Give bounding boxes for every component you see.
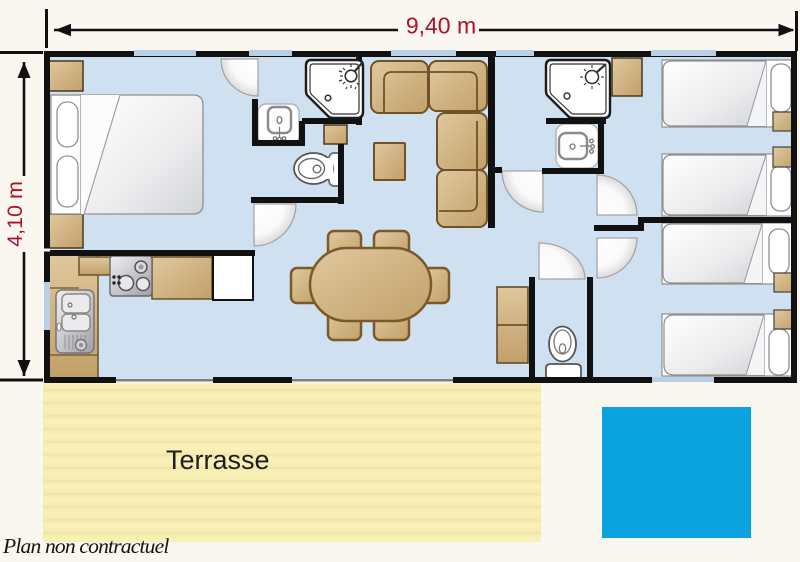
- svg-text:Terrasse: Terrasse: [166, 445, 270, 475]
- svg-text:Plan non contractuel: Plan non contractuel: [2, 534, 169, 558]
- svg-text:9,40 m: 9,40 m: [406, 13, 476, 39]
- svg-text:4,10 m: 4,10 m: [3, 181, 27, 247]
